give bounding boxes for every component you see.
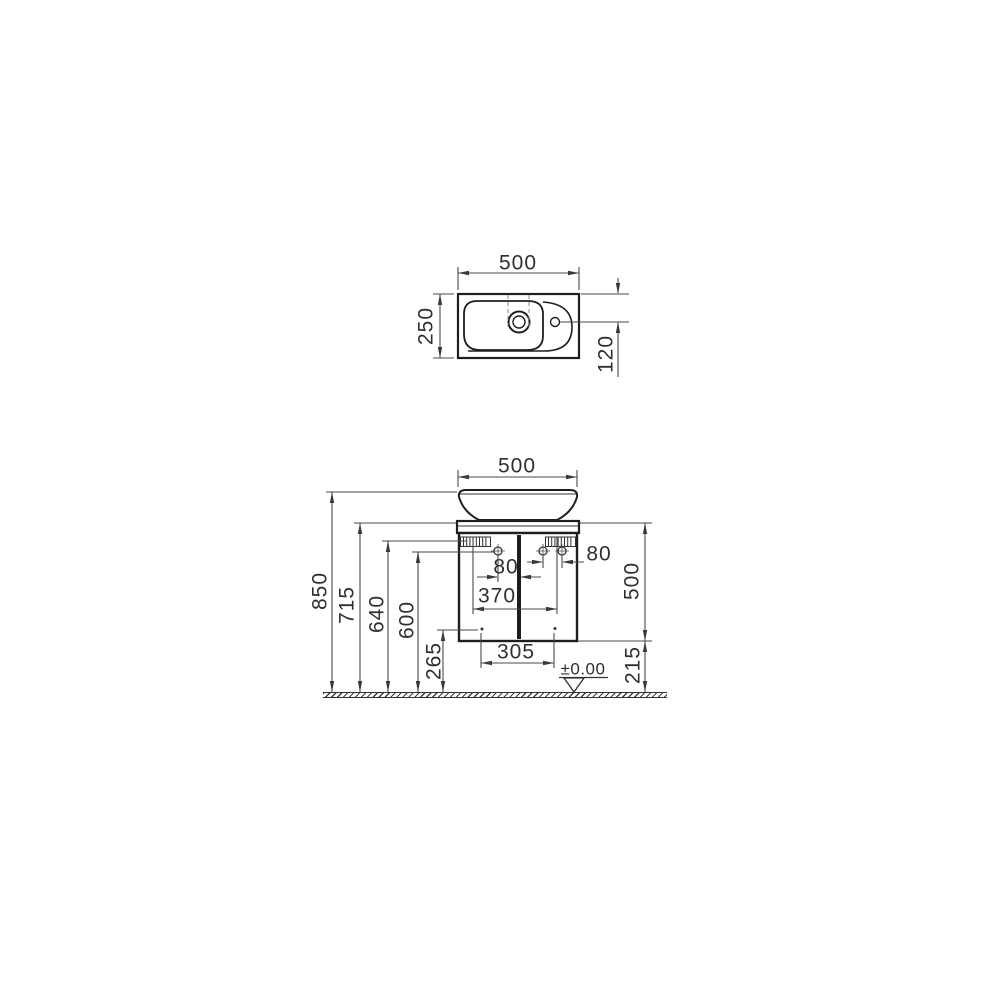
handle-spacing-label: 305 bbox=[497, 642, 535, 663]
handle-height-label: 265 bbox=[424, 642, 445, 680]
bracket-height-label: 640 bbox=[367, 595, 388, 633]
left-hole-offset-label: 80 bbox=[493, 557, 518, 578]
datum-level-label: ±0.00 bbox=[561, 661, 606, 678]
drawing-linework bbox=[0, 0, 1000, 1000]
ground-line bbox=[323, 692, 667, 698]
mount-hole-height-label: 600 bbox=[397, 601, 418, 639]
top-view-depth-label: 250 bbox=[416, 307, 437, 345]
overall-height-label: 850 bbox=[310, 572, 331, 610]
tap-hole-offset-label: 120 bbox=[596, 335, 617, 373]
left-handle-mark bbox=[481, 628, 484, 631]
bracket-spacing-label: 370 bbox=[478, 586, 516, 607]
top-view-width-label: 500 bbox=[499, 253, 537, 274]
floor-clearance-label: 215 bbox=[623, 646, 644, 684]
worktop-height-label: 715 bbox=[337, 586, 358, 624]
front-width-label: 500 bbox=[498, 456, 536, 477]
right-handle-mark bbox=[554, 627, 557, 630]
worktop bbox=[457, 521, 579, 533]
technical-drawing: 500 250 120 500 850 715 640 600 265 80 8… bbox=[0, 0, 1000, 1000]
cabinet-height-label: 500 bbox=[622, 562, 643, 600]
right-hole-spacing-label: 80 bbox=[586, 544, 611, 565]
datum-triangle bbox=[564, 678, 584, 692]
